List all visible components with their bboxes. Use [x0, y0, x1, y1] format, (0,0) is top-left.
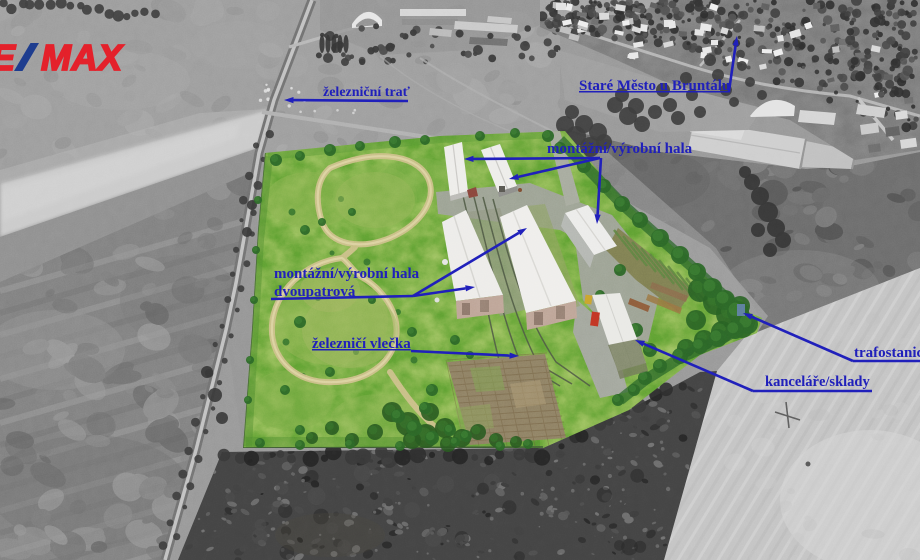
- svg-text:železniční trať: železniční trať: [323, 85, 411, 100]
- svg-text:kanceláře/sklady: kanceláře/sklady: [765, 374, 870, 390]
- svg-text:Staré Město u Bruntálu: Staré Město u Bruntálu: [579, 78, 730, 94]
- svg-text:montážní/výrobní hala: montážní/výrobní hala: [274, 266, 420, 282]
- svg-text:trafostanice: trafostanice: [854, 345, 920, 361]
- svg-text:MAX: MAX: [41, 37, 124, 78]
- svg-text:E: E: [0, 37, 16, 78]
- svg-text:železničí vlečka: železničí vlečka: [312, 336, 411, 352]
- svg-text:montážní/výrobní hala: montážní/výrobní hala: [547, 141, 693, 157]
